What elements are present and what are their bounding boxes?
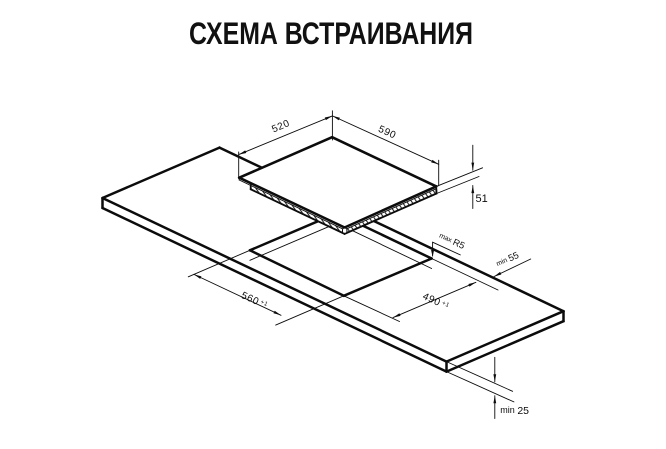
svg-text:51: 51: [476, 193, 488, 205]
svg-text:СХЕМА ВСТРАИВАНИЯ: СХЕМА ВСТРАИВАНИЯ: [189, 15, 473, 51]
